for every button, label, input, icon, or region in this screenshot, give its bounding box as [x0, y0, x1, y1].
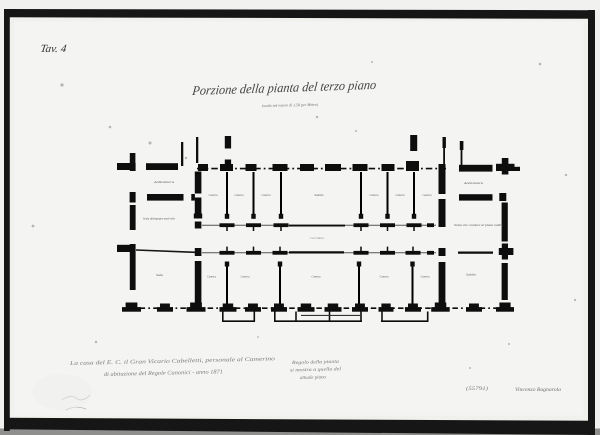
svg-text:Camera: Camera	[370, 193, 379, 197]
svg-text:Camera: Camera	[235, 193, 244, 197]
svg-text:Tav. 4: Tav. 4	[40, 43, 68, 55]
svg-text:Sala: Sala	[156, 273, 163, 277]
svg-text:Salotto: Salotto	[466, 273, 476, 277]
svg-text:Camera: Camera	[207, 275, 216, 279]
svg-text:Camera: Camera	[423, 193, 432, 197]
svg-text:Camera: Camera	[380, 275, 389, 279]
svg-text:Camera: Camera	[421, 275, 430, 279]
svg-text:Salotto: Salotto	[315, 193, 324, 197]
svg-text:Anticamera: Anticamera	[463, 181, 484, 185]
svg-text:Camera: Camera	[241, 275, 250, 279]
svg-text:Scala che conduce al piano nob: Scala che conduce al piano nobile	[454, 223, 504, 227]
svg-text:Scala disimpegno med volte: Scala disimpegno med volte	[143, 217, 176, 221]
svg-text:Camera: Camera	[262, 193, 271, 197]
svg-text:(55791): (55791)	[466, 385, 488, 392]
svg-text:Camera: Camera	[209, 193, 218, 197]
svg-text:Vincenzo Bagnarola: Vincenzo Bagnarola	[515, 388, 562, 393]
svg-text:Anticamera: Anticamera	[153, 180, 175, 184]
svg-text:attuale piano: attuale piano	[300, 375, 327, 381]
svg-text:Camera: Camera	[312, 275, 321, 279]
svg-text:Corridoio: Corridoio	[310, 236, 325, 240]
svg-text:Camera: Camera	[396, 193, 405, 197]
